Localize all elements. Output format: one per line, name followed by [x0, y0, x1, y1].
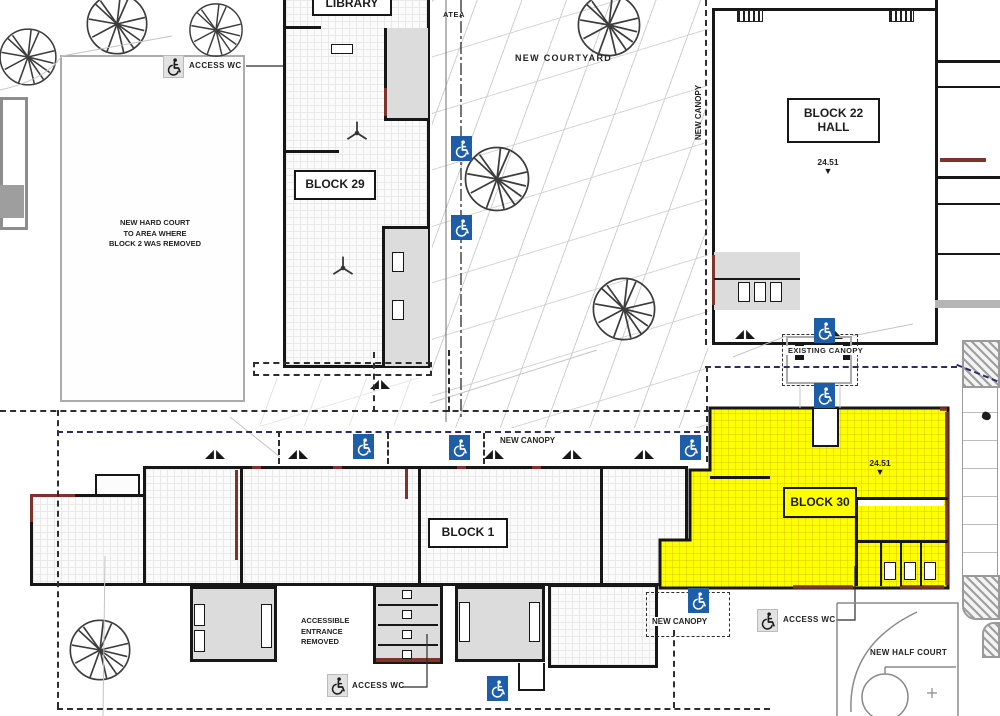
block-29-canopy-dash — [253, 362, 432, 376]
wheelchair-icon — [487, 676, 508, 701]
access-wc-icon — [163, 55, 184, 78]
block-29-wc-rooms — [386, 28, 428, 120]
left-structure-solid — [0, 185, 24, 218]
boundary-dash — [57, 708, 770, 710]
block-30-entry-recess — [812, 409, 839, 447]
block-1-label: BLOCK 1 — [428, 518, 508, 548]
boundary-dash — [705, 366, 957, 368]
courtyard-paving — [432, 0, 708, 428]
wheelchair-icon — [680, 435, 701, 460]
canopy-dash — [483, 433, 485, 464]
new-courtyard-label: NEW COURTYARD — [515, 53, 612, 63]
block-29-label: BLOCK 29 — [294, 170, 376, 200]
new-canopy-block30-label: NEW CANOPY — [650, 617, 709, 626]
wheelchair-icon — [451, 215, 472, 240]
wheelchair-icon — [814, 318, 835, 343]
block-30-label: BLOCK 30 — [783, 487, 857, 518]
canopy-dash — [278, 431, 280, 464]
block-22-level: 24.51 ▼ — [800, 157, 856, 175]
access-wc-icon — [757, 609, 778, 632]
down-triangle-icon: ▼ — [852, 468, 908, 476]
wheelchair-icon — [451, 136, 472, 161]
wheelchair-icon — [688, 588, 709, 613]
hard-court-note: NEW HARD COURT TO AREA WHERE BLOCK 2 WAS… — [105, 218, 205, 250]
block-1-building — [143, 466, 688, 586]
accessible-entrance-note: ACCESSIBLE ENTRANCE REMOVED — [301, 616, 373, 648]
block-22-vent-left — [737, 10, 763, 22]
canopy-dash — [387, 433, 389, 464]
access-wc-label: ACCESS WC — [783, 615, 836, 624]
boundary-dash — [673, 630, 675, 708]
block-30-level: 24.51 ▼ — [852, 458, 908, 476]
canopy-dash — [373, 352, 375, 412]
wheelchair-icon — [814, 383, 835, 408]
entry-stoop — [518, 663, 545, 691]
down-triangle-icon: ▼ — [800, 167, 856, 175]
new-canopy-block22-label: NEW CANOPY — [694, 85, 703, 140]
new-half-court-label: NEW HALF COURT — [870, 648, 947, 657]
atea-label: ATEA — [443, 10, 465, 19]
half-court — [837, 603, 958, 716]
block-29-service-rooms — [382, 228, 428, 366]
block-1-east-room — [548, 584, 658, 668]
wheelchair-icon — [449, 435, 470, 460]
canopy-dash — [706, 366, 708, 462]
canopy-dash — [448, 350, 450, 412]
existing-canopy-label: EXISTING CANOPY — [786, 346, 865, 355]
access-wc-label: ACCESS WC — [352, 681, 405, 690]
walkway-hatch-bottom — [962, 575, 1000, 620]
site-plan: NEW HARD COURT TO AREA WHERE BLOCK 2 WAS… — [0, 0, 1000, 716]
library-label: LIBRARY — [312, 0, 392, 16]
block-22-vent-right — [889, 10, 914, 22]
boundary-dash — [57, 410, 59, 708]
wheelchair-icon — [353, 434, 374, 459]
new-canopy-block1-label: NEW CANOPY — [500, 436, 555, 445]
courtyard-paving-spill — [232, 378, 432, 426]
canopy-dash — [57, 431, 710, 433]
block-22-label: BLOCK 22 HALL — [787, 98, 880, 143]
block-1-west-wing — [30, 494, 146, 586]
canopy-dash — [705, 0, 707, 345]
access-wc-icon — [327, 674, 348, 697]
corner-hatch — [982, 622, 1000, 658]
boundary-dash — [0, 410, 710, 412]
access-wc-label: ACCESS WC — [189, 61, 242, 70]
